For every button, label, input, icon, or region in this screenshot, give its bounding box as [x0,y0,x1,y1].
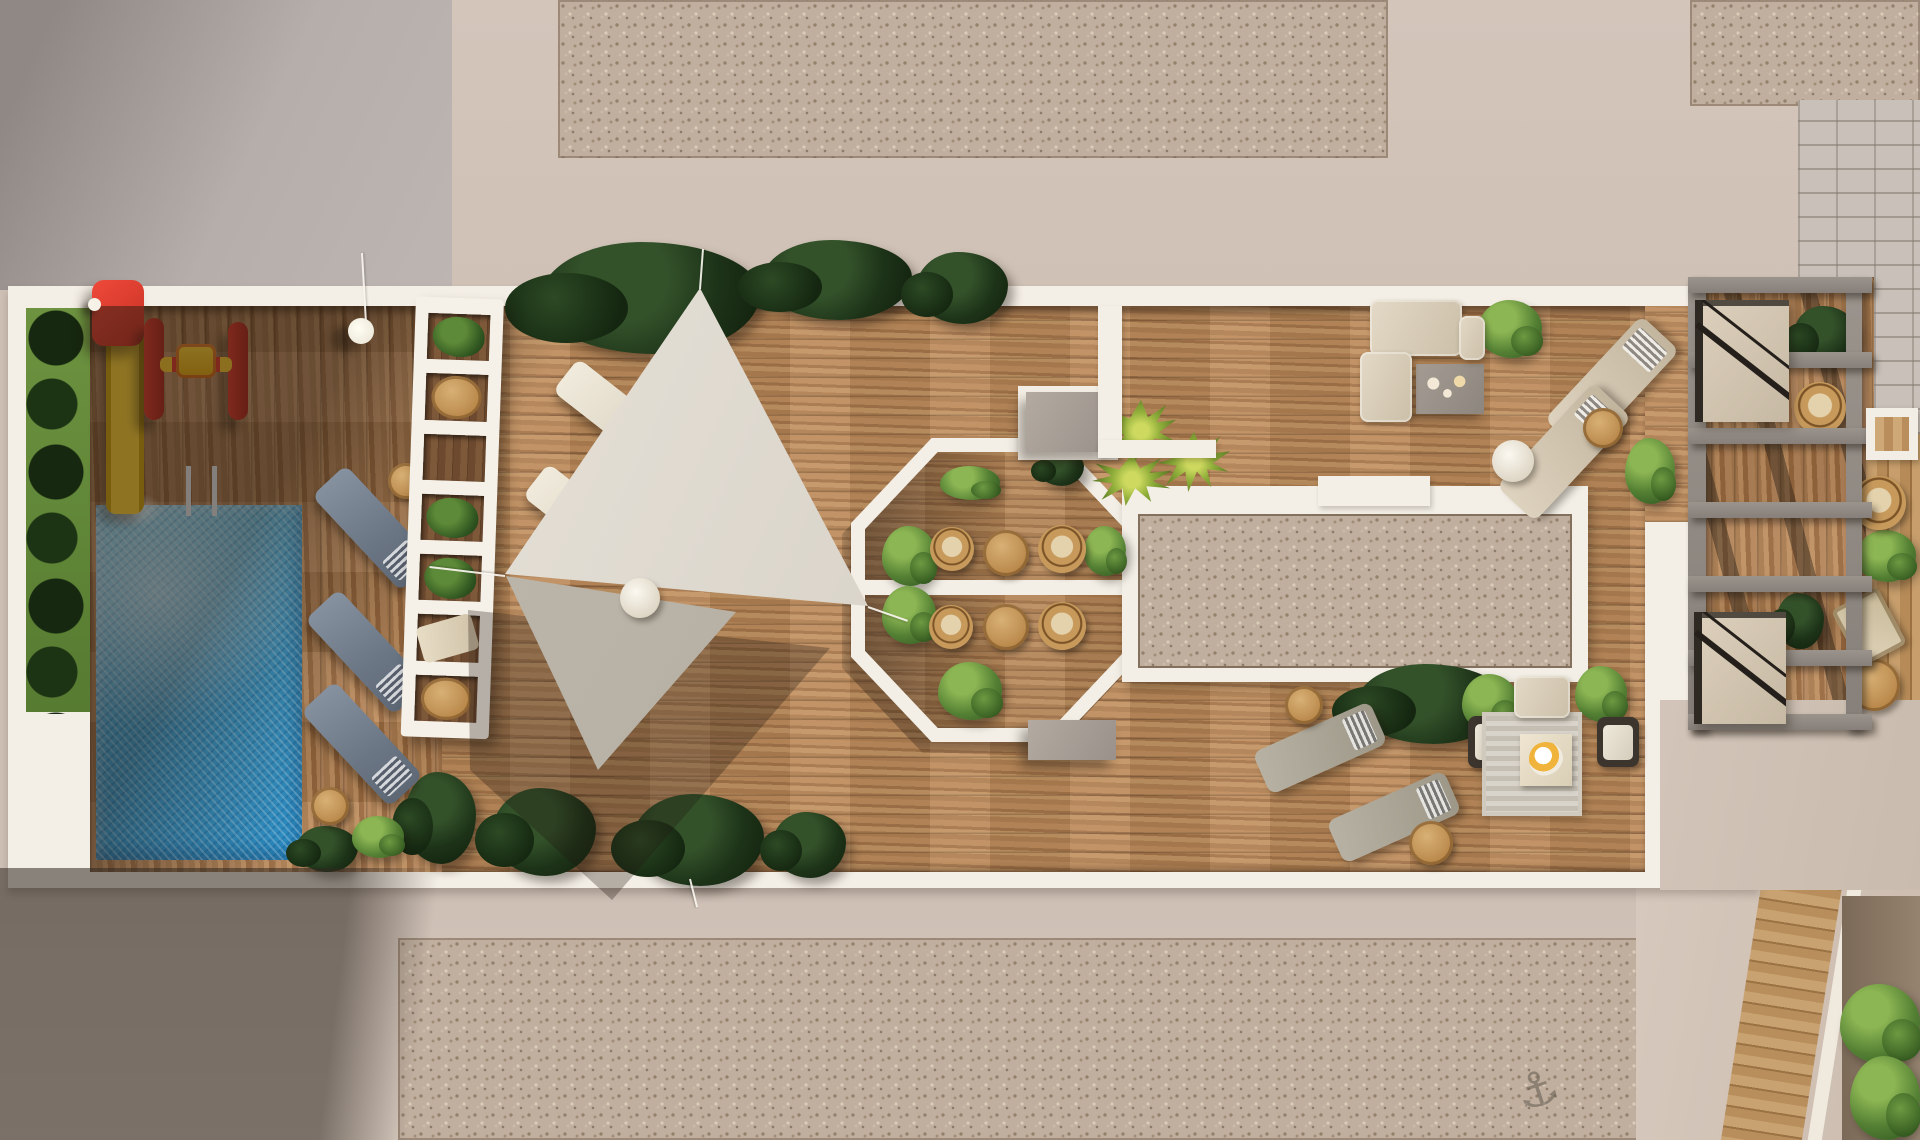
rooftop-aerial-render: ⚓ [0,0,1920,1140]
side-table [620,578,660,618]
building-shadow-bottom-left [0,868,700,1140]
sail-cable [699,249,704,289]
sail-cable [868,606,909,622]
sail-cable [430,566,505,577]
deck-light [88,298,101,311]
sail-cable [361,253,367,323]
pendant-light [348,318,374,344]
